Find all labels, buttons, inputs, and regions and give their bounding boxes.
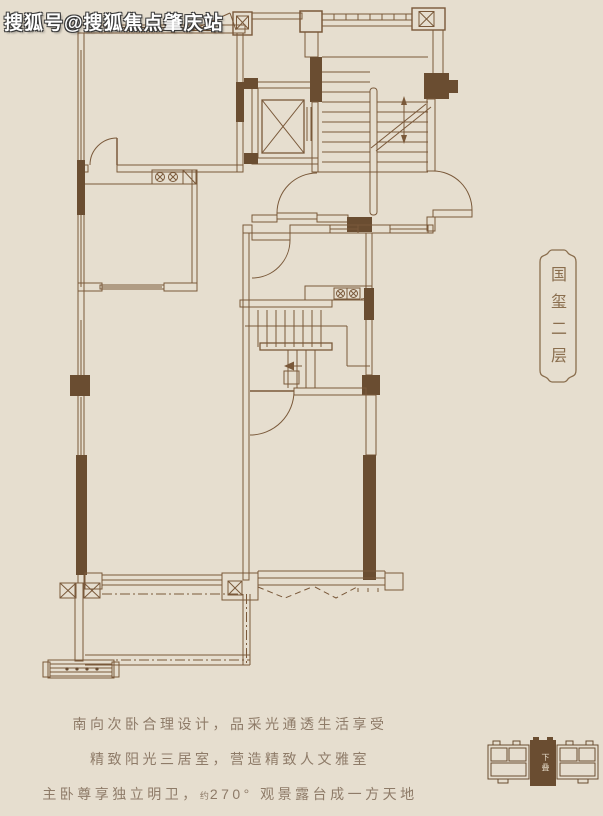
middle-partition-wall [362,233,380,580]
right-outer-wall [424,30,472,231]
left-outer-wall [70,33,90,583]
floorplan-page: 搜狐号@搜狐焦点肇庆站 [0,0,603,816]
tagline-3-approx: 约 [200,791,210,801]
hall-door-arc [252,233,290,278]
elevator [244,78,318,164]
bedroom-door-arc [250,391,294,435]
column-symbol-icon [84,583,100,598]
tagline-3: 主卧尊享独立明卫，约270° 观景露台成一方天地 [10,784,450,804]
hall [240,233,372,580]
stair-direction-arrow-icon [284,362,302,371]
tagline-1: 南向次卧合理设计，品采光通透生活享受 [10,714,450,734]
watermark-text: 搜狐号@搜狐焦点肇庆站 [4,8,224,35]
floor-plan-drawing [0,0,603,816]
tagline-2: 精致阳光三居室，营造精致人文雅室 [10,749,450,769]
column-symbol-icon [419,12,434,27]
keyplan-label: 下叠 [539,753,551,779]
tagline-3-prefix: 主卧尊享独立明卫， [42,786,200,802]
interior-staircase [245,310,370,388]
column-symbol-icon [237,16,249,29]
balcony [43,583,250,678]
kitchen [78,170,197,291]
plaque-label: 国玺二层 [548,266,568,378]
stove-icon [305,286,372,300]
bedroom-door-arc [90,138,117,165]
top-wall-band [252,8,445,57]
top-left-bedroom [78,12,252,172]
entry-doors [243,173,433,278]
column-symbol-icon [228,581,242,595]
column-symbol-icon [60,583,76,598]
planter-box [43,660,119,678]
main-staircase [310,57,431,215]
tagline-3-suffix: 270° 观景露台成一方天地 [210,786,418,802]
stair-exit-door-arc [433,171,472,217]
